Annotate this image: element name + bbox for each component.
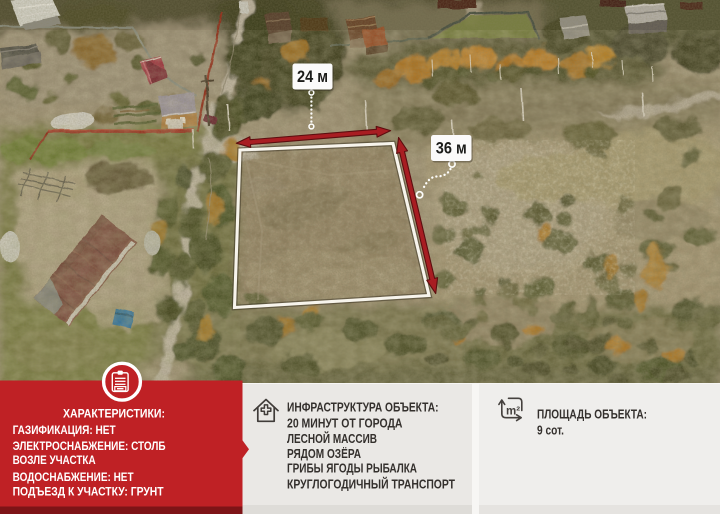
svg-text:ВОЗЛЕ УЧАСТКА: ВОЗЛЕ УЧАСТКА: [13, 453, 96, 467]
svg-text:РЯДОМ ОЗЁРА: РЯДОМ ОЗЁРА: [287, 446, 361, 461]
svg-text:ПЛОЩАДЬ ОБЪЕКТА:: ПЛОЩАДЬ ОБЪЕКТА:: [537, 407, 647, 421]
svg-text:ХАРАКТЕРИСТИКИ:: ХАРАКТЕРИСТИКИ:: [63, 407, 165, 421]
svg-text:9 сот.: 9 сот.: [537, 424, 564, 438]
svg-text:24 м: 24 м: [297, 68, 328, 86]
svg-text:ИНФРАСТРУКТУРА ОБЪЕКТА:: ИНФРАСТРУКТУРА ОБЪЕКТА:: [287, 400, 439, 414]
svg-text:ЛЕСНОЙ МАССИВ: ЛЕСНОЙ МАССИВ: [287, 431, 377, 446]
svg-text:КРУГЛОГОДИЧНЫЙ ТРАНСПОРТ: КРУГЛОГОДИЧНЫЙ ТРАНСПОРТ: [287, 477, 455, 492]
svg-text:ВОДОСНАБЖЕНИЕ: НЕТ: ВОДОСНАБЖЕНИЕ: НЕТ: [13, 470, 135, 484]
svg-text:m²: m²: [506, 406, 520, 418]
svg-text:20 МИНУТ ОТ ГОРОДА: 20 МИНУТ ОТ ГОРОДА: [287, 416, 403, 430]
svg-text:ГРИБЫ ЯГОДЫ РЫБАЛКА: ГРИБЫ ЯГОДЫ РЫБАЛКА: [287, 462, 417, 476]
svg-text:ЭЛЕКТРОСНАБЖЕНИЕ: СТОЛБ: ЭЛЕКТРОСНАБЖЕНИЕ: СТОЛБ: [13, 439, 166, 453]
svg-text:ГАЗИФИКАЦИЯ: НЕТ: ГАЗИФИКАЦИЯ: НЕТ: [13, 423, 117, 437]
svg-text:36 м: 36 м: [436, 140, 467, 158]
svg-text:ПОДЪЕЗД К УЧАСТКУ: ГРУНТ: ПОДЪЕЗД К УЧАСТКУ: ГРУНТ: [13, 484, 165, 498]
